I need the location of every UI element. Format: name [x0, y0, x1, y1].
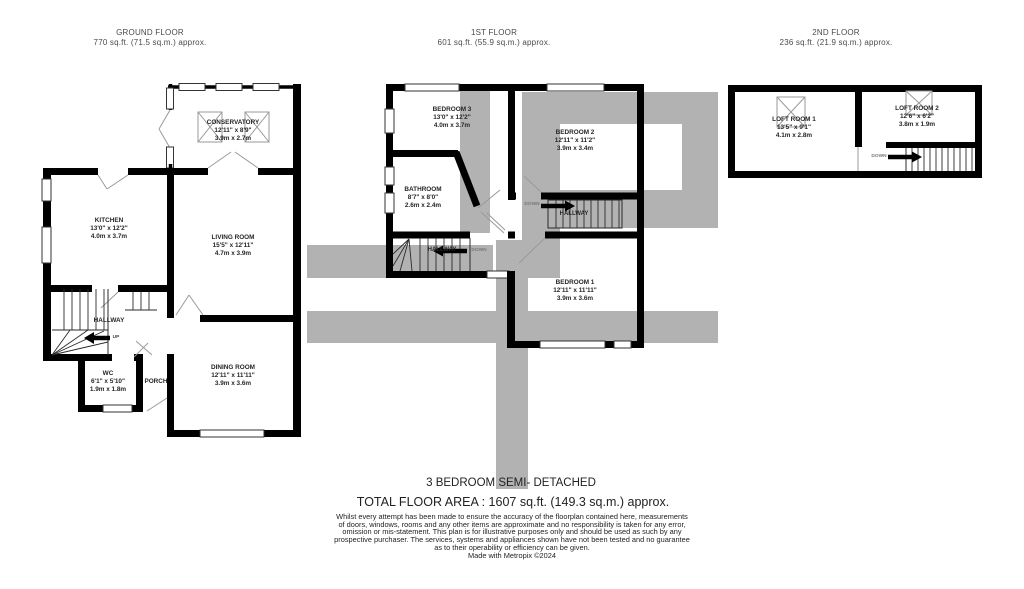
room-dims-imperial: 15'5" x 12'11": [212, 242, 255, 250]
floorplan-page: GROUND FLOOR 770 sq.ft. (71.5 sq.m.) app…: [0, 0, 1024, 589]
door-swing: [176, 295, 189, 315]
stairs-up-label: UP: [113, 335, 120, 340]
room-dims-imperial: 12'11" x 11'11": [211, 372, 255, 380]
wall: [508, 84, 515, 200]
door-swing: [107, 175, 128, 189]
stairs-down-label: DOWN: [471, 248, 486, 253]
wall: [293, 84, 301, 437]
room-dims-imperial: 12'11" x 11'2": [555, 137, 595, 145]
window: [487, 271, 509, 278]
room-name: WC: [90, 370, 126, 378]
room-dims-imperial: 12'11" x 11'11": [553, 287, 597, 295]
room-dims-metric: 4.1m x 2.8m: [772, 132, 816, 140]
room-name: HALLWAY: [560, 211, 589, 219]
window: [253, 84, 279, 91]
wall: [975, 85, 982, 178]
room-name: CONSERVATORY: [207, 119, 260, 127]
stairs-down-arrow-icon: [888, 152, 922, 163]
room-dims-imperial: 12'6" x 6'2": [895, 113, 939, 121]
window: [547, 84, 604, 91]
room-name: BEDROOM 3: [433, 106, 472, 114]
room-label-bedroom-1: BEDROOM 1 12'11" x 11'11" 3.9m x 3.6m: [553, 279, 597, 302]
up-text: UP: [113, 335, 120, 340]
ground-floor-header: GROUND FLOOR 770 sq.ft. (71.5 sq.m.) app…: [94, 28, 207, 47]
window: [103, 405, 132, 412]
floor-area: 770 sq.ft. (71.5 sq.m.) approx.: [94, 38, 207, 48]
room-label-hallway-ground: HALLWAY: [94, 317, 125, 325]
total-floor-area-caption: TOTAL FLOOR AREA : 1607 sq.ft. (149.3 sq…: [357, 495, 669, 509]
room-dims-metric: 3.9m x 2.7m: [207, 135, 260, 143]
ground-floor-plan: [42, 84, 301, 438]
window: [614, 341, 631, 348]
room-name: LOFT ROOM 1: [772, 116, 816, 124]
window: [385, 193, 394, 213]
room-label-wc: WC 6'1" x 5'10" 1.9m x 1.8m: [90, 370, 126, 393]
wall: [637, 84, 644, 348]
door-swing: [235, 152, 258, 168]
floor-area: 601 sq.ft. (55.9 sq.m.) approx.: [438, 38, 551, 48]
wall: [167, 354, 174, 430]
window: [540, 341, 605, 348]
window: [42, 179, 51, 201]
room-label-hallway-first-left: HALLWAY: [428, 247, 457, 255]
room-dims-imperial: 13'0" x 12'2": [90, 225, 128, 233]
floor-title: GROUND FLOOR: [94, 28, 207, 38]
room-name: LOFT ROOM 2: [895, 105, 939, 113]
room-dims-metric: 1.9m x 1.8m: [90, 386, 126, 394]
room-dims-metric: 3.9m x 3.4m: [555, 145, 595, 153]
down-text: DOWN: [871, 154, 886, 159]
property-type-text: 3 BEDROOM SEMI- DETACHED: [426, 477, 596, 489]
window: [216, 84, 242, 91]
room-dims-imperial: 12'11" x 8'9": [207, 127, 260, 135]
window: [42, 227, 51, 263]
window: [200, 430, 264, 437]
room-label-conservatory: CONSERVATORY 12'11" x 8'9" 3.9m x 2.7m: [207, 119, 260, 142]
room-dims-metric: 4.0m x 3.7m: [90, 233, 128, 241]
room-dims-imperial: 13'5" x 9'1": [772, 124, 816, 132]
second-floor-header: 2ND FLOOR 236 sq.ft. (21.9 sq.m.) approx…: [780, 28, 893, 47]
wall: [167, 168, 174, 318]
room-name: DINING ROOM: [211, 364, 255, 372]
floor-title: 1ST FLOOR: [438, 28, 551, 38]
floor-title: 2ND FLOOR: [780, 28, 893, 38]
door-swing: [208, 152, 231, 168]
wall: [136, 354, 143, 412]
wall: [78, 354, 85, 412]
room-dims-metric: 3.9m x 3.6m: [553, 295, 597, 303]
room-dims-imperial: 8'7" x 8'0": [404, 194, 441, 202]
room-label-porch: PORCH: [144, 378, 167, 386]
disclaimer: Whilst every attempt has been made to en…: [334, 513, 690, 559]
room-name: KITCHEN: [90, 217, 128, 225]
window: [405, 84, 459, 91]
room-name: HALLWAY: [428, 247, 457, 255]
window: [167, 88, 174, 109]
property-type-caption: 3 BEDROOM SEMI- DETACHED: [426, 477, 596, 489]
down-text: DOWN: [471, 248, 486, 253]
room-name: BATHROOM: [404, 186, 441, 194]
room-label-loft-room-2: LOFT ROOM 2 12'6" x 6'2" 3.8m x 1.9m: [895, 105, 939, 128]
room-label-hallway-first-right: HALLWAY: [560, 211, 589, 219]
room-label-bedroom-3: BEDROOM 3 13'0" x 12'2" 4.0m x 3.7m: [433, 106, 472, 129]
room-dims-metric: 4.7m x 3.9m: [212, 250, 255, 258]
stairs-down-label: DOWN: [871, 154, 886, 159]
floor-area: 236 sq.ft. (21.9 sq.m.) approx.: [780, 38, 893, 48]
second-floor-plan: [728, 85, 982, 178]
down-text: DOWN: [524, 202, 539, 207]
window: [179, 84, 205, 91]
room-label-kitchen: KITCHEN 13'0" x 12'2" 4.0m x 3.7m: [90, 217, 128, 240]
room-name: HALLWAY: [94, 317, 125, 325]
wall: [855, 85, 862, 147]
door-swing: [159, 129, 170, 148]
room-name: BEDROOM 2: [555, 129, 595, 137]
door-swing: [189, 295, 203, 315]
room-dims-metric: 3.9m x 3.6m: [211, 380, 255, 388]
room-label-dining-room: DINING ROOM 12'11" x 11'11" 3.9m x 3.6m: [211, 364, 255, 387]
room-label-loft-room-1: LOFT ROOM 1 13'5" x 9'1" 4.1m x 2.8m: [772, 116, 816, 139]
door-swing: [147, 398, 167, 411]
wall: [728, 85, 735, 178]
first-floor-header: 1ST FLOOR 601 sq.ft. (55.9 sq.m.) approx…: [438, 28, 551, 47]
room-dims-metric: 4.0m x 3.7m: [433, 122, 472, 130]
room-label-bedroom-2: BEDROOM 2 12'11" x 11'2" 3.9m x 3.4m: [555, 129, 595, 152]
room-dims-imperial: 6'1" x 5'10": [90, 378, 126, 386]
room-dims-metric: 3.8m x 1.9m: [895, 121, 939, 129]
door-swing: [98, 175, 107, 189]
room-label-bathroom: BATHROOM 8'7" x 8'0" 2.6m x 2.4m: [404, 186, 441, 209]
room-name: LIVING ROOM: [212, 234, 255, 242]
stairs-down-label: DOWN: [524, 202, 539, 207]
room-dims-metric: 2.6m x 2.4m: [404, 202, 441, 210]
total-floor-area-text: TOTAL FLOOR AREA : 1607 sq.ft. (149.3 sq…: [357, 495, 669, 509]
room-label-living-room: LIVING ROOM 15'5" x 12'11" 4.7m x 3.9m: [212, 234, 255, 257]
room-name: BEDROOM 1: [553, 279, 597, 287]
wall: [507, 271, 515, 348]
room-dims-imperial: 13'0" x 12'2": [433, 114, 472, 122]
window: [385, 109, 394, 133]
room-name: PORCH: [144, 378, 167, 386]
credit-line: Made with Metropix ©2024: [334, 552, 690, 560]
window: [385, 167, 394, 185]
door-swing: [159, 110, 170, 129]
